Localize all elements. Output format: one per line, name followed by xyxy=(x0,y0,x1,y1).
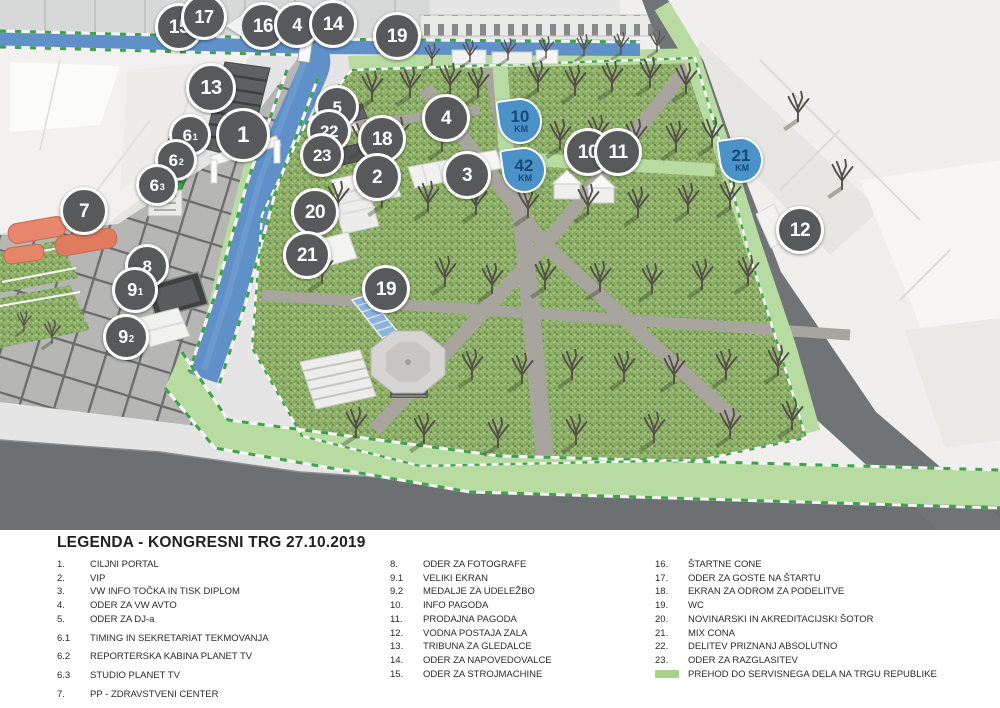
legend-item-label: ODER ZA VW AVTO xyxy=(90,599,177,613)
legend-item: 14.ODER ZA NAPOVEDOVALCE xyxy=(390,654,552,668)
legend-item: 20.NOVINARSKI IN AKREDITACIJSKI ŠOTOR xyxy=(655,613,937,627)
legend-item: 4.ODER ZA VW AVTO xyxy=(57,599,269,613)
map-marker-12: 12 xyxy=(776,206,824,254)
legend-item: 5.ODER ZA DJ-a xyxy=(57,613,269,627)
map-marker-9-2: 92 xyxy=(103,314,149,360)
legend-item-label: VELIKI EKRAN xyxy=(423,572,488,586)
marker-number: 9 xyxy=(118,328,128,346)
map-marker-3: 3 xyxy=(443,151,491,199)
legend-item: 21.MIX CONA xyxy=(655,627,937,641)
legend-item-label: DELITEV PRIZNANJ ABSOLUTNO xyxy=(688,640,837,654)
legend-item: 2.VIP xyxy=(57,572,269,586)
legend-item-number: 11. xyxy=(390,613,423,627)
marker-number: 4 xyxy=(292,16,302,34)
legend-item-label: STUDIO PLANET TV xyxy=(90,669,180,683)
marker-number: 4 xyxy=(441,109,451,128)
legend-item-label: NOVINARSKI IN AKREDITACIJSKI ŠOTOR xyxy=(688,613,873,627)
legend-item-number: 6.1 xyxy=(57,632,90,646)
marker-number: 12 xyxy=(790,221,810,240)
km-value: 42 xyxy=(514,158,533,174)
legend-item-label: ODER ZA DJ-a xyxy=(90,613,154,627)
km-value: 21 xyxy=(731,148,750,164)
legend-item-label: ODER ZA RAZGLASITEV xyxy=(688,654,798,668)
legend-item-label: WC xyxy=(688,599,704,613)
legend-item-number: 6.3 xyxy=(57,669,90,683)
km-value: 10 xyxy=(510,109,529,125)
legend-item: 12.VODNA POSTAJA ZALA xyxy=(390,627,552,641)
legend-item-label: ODER ZA NAPOVEDOVALCE xyxy=(423,654,552,668)
marker-number: 7 xyxy=(79,202,89,221)
map-marker-1: 1 xyxy=(216,108,270,162)
legend-item-number: 1. xyxy=(57,558,90,572)
legend-item-number: 8. xyxy=(390,558,423,572)
legend-item-label: VW INFO TOČKA IN TISK DIPLOM xyxy=(90,585,240,599)
legend-item: 15.ODER ZA STROJMACHINE xyxy=(390,668,552,682)
legend-title: LEGENDA - KONGRESNI TRG 27.10.2019 xyxy=(57,534,366,552)
legend-column-1: 1.CILJNI PORTAL2.VIP3.VW INFO TOČKA IN T… xyxy=(57,558,269,701)
legend-item-label: TRIBUNA ZA GLEDALCE xyxy=(423,640,532,654)
legend-item: 6.3STUDIO PLANET TV xyxy=(57,669,269,683)
map-marker-19a: 19 xyxy=(373,12,421,60)
legend-item-label: TIMING IN SEKRETARIAT TEKMOVANJA xyxy=(90,632,269,646)
map-marker-13: 13 xyxy=(186,63,236,113)
legend-item-number: 19. xyxy=(655,599,688,613)
legend-item-number: 16. xyxy=(655,558,688,572)
legend-item: 19.WC xyxy=(655,599,937,613)
legend-item-label: MEDALJE ZA UDELEŽBO xyxy=(423,585,535,599)
legend-item-number: 14. xyxy=(390,654,423,668)
marker-number: 3 xyxy=(462,166,472,185)
marker-number: 6 xyxy=(150,177,159,194)
legend-item: 18.EKRAN ZA ODROM ZA PODELITVE xyxy=(655,585,937,599)
legend-item-label: ODER ZA STROJMACHINE xyxy=(423,668,542,682)
legend-item: 16.ŠTARTNE CONE xyxy=(655,558,937,572)
legend-item-label: VIP xyxy=(90,572,105,586)
legend-item-number: 9.1 xyxy=(390,572,423,586)
legend-item-label: PREHOD DO SERVISNEGA DELA NA TRGU REPUBL… xyxy=(688,668,937,682)
legend-item-label: ŠTARTNE CONE xyxy=(688,558,762,572)
legend-item-label: REPORTERSKA KABINA PLANET TV xyxy=(90,650,252,664)
km-badge-10km: 10KM xyxy=(495,95,545,147)
legend-item-label: EKRAN ZA ODROM ZA PODELITVE xyxy=(688,585,844,599)
marker-number: 13 xyxy=(200,78,221,98)
map-overlay: 1517164141913161626352223182431011127202… xyxy=(0,0,1000,530)
legend-item-number: 7. xyxy=(57,688,90,702)
legend-item-label: MIX CONA xyxy=(688,627,735,641)
marker-number: 23 xyxy=(313,147,331,164)
marker-number: 18 xyxy=(372,130,392,149)
legend-item-label: INFO PAGODA xyxy=(423,599,488,613)
legend-item-label: PRODAJNA PAGODA xyxy=(423,613,517,627)
legend-item-number: 12. xyxy=(390,627,423,641)
legend-item-label: ODER ZA GOSTE NA ŠTARTU xyxy=(688,572,821,586)
map-marker-21: 21 xyxy=(283,231,331,279)
legend-item: 10.INFO PAGODA xyxy=(390,599,552,613)
legend-column-2: 8.ODER ZA FOTOGRAFE9.1VELIKI EKRAN9.2MED… xyxy=(390,558,552,681)
km-unit: KM xyxy=(518,173,532,182)
legend-item: 11.PRODAJNA PAGODA xyxy=(390,613,552,627)
marker-subnumber: 2 xyxy=(129,335,134,345)
legend-item-number: 17. xyxy=(655,572,688,586)
legend-column-3: 16.ŠTARTNE CONE17.ODER ZA GOSTE NA ŠTART… xyxy=(655,558,937,681)
marker-number: 14 xyxy=(323,15,343,34)
map-marker-6-3: 63 xyxy=(136,164,178,206)
legend-item-label: PP - ZDRAVSTVENI CENTER xyxy=(90,688,218,702)
map-marker-11: 11 xyxy=(594,128,642,176)
legend-item-number: 6.2 xyxy=(57,650,90,664)
legend-item: 13.TRIBUNA ZA GLEDALCE xyxy=(390,640,552,654)
map-marker-20: 20 xyxy=(291,188,339,236)
legend-swatch xyxy=(655,670,679,678)
legend-item: 9.2MEDALJE ZA UDELEŽBO xyxy=(390,585,552,599)
legend-item-label: VODNA POSTAJA ZALA xyxy=(423,627,527,641)
map-marker-23: 23 xyxy=(300,133,344,177)
legend-item: 6.1TIMING IN SEKRETARIAT TEKMOVANJA xyxy=(57,632,269,646)
legend-item-number: 22. xyxy=(655,640,688,654)
legend-item: 1.CILJNI PORTAL xyxy=(57,558,269,572)
legend-item: 22.DELITEV PRIZNANJ ABSOLUTNO xyxy=(655,640,937,654)
legend-item-number: 3. xyxy=(57,585,90,599)
legend: LEGENDA - KONGRESNI TRG 27.10.2019 1.CIL… xyxy=(0,530,1000,708)
map-marker-9-1: 91 xyxy=(112,267,158,313)
legend-item-number: 10. xyxy=(390,599,423,613)
legend-item-number: 20. xyxy=(655,613,688,627)
marker-number: 2 xyxy=(372,168,382,187)
legend-item: 9.1VELIKI EKRAN xyxy=(390,572,552,586)
map-marker-14: 14 xyxy=(309,0,357,48)
km-badge-42km: 42KM xyxy=(499,144,549,196)
marker-number: 9 xyxy=(127,281,137,299)
legend-item-number: 23. xyxy=(655,654,688,668)
km-unit: KM xyxy=(735,163,749,172)
legend-item-label: ODER ZA FOTOGRAFE xyxy=(423,558,526,572)
venue-map: 1517164141913161626352223182431011127202… xyxy=(0,0,1000,530)
legend-item: 3.VW INFO TOČKA IN TISK DIPLOM xyxy=(57,585,269,599)
legend-item-number: 18. xyxy=(655,585,688,599)
legend-item: 6.2REPORTERSKA KABINA PLANET TV xyxy=(57,650,269,664)
legend-item-number: 4. xyxy=(57,599,90,613)
marker-subnumber: 1 xyxy=(193,133,198,142)
map-marker-7: 7 xyxy=(60,187,108,235)
map-marker-19b: 19 xyxy=(362,265,410,313)
marker-number: 6 xyxy=(169,152,178,169)
marker-number: 16 xyxy=(253,17,273,36)
venue-map-page: 1517164141913161626352223182431011127202… xyxy=(0,0,1000,708)
legend-item-number: 9.2 xyxy=(390,585,423,599)
legend-item-number: 13. xyxy=(390,640,423,654)
legend-item: 17.ODER ZA GOSTE NA ŠTARTU xyxy=(655,572,937,586)
map-marker-2: 2 xyxy=(353,153,401,201)
marker-number: 20 xyxy=(305,203,325,222)
map-marker-4b: 4 xyxy=(422,94,470,142)
marker-number: 17 xyxy=(194,8,213,26)
legend-item-label: CILJNI PORTAL xyxy=(90,558,159,572)
legend-item: PREHOD DO SERVISNEGA DELA NA TRGU REPUBL… xyxy=(655,668,937,682)
legend-item: 23.ODER ZA RAZGLASITEV xyxy=(655,654,937,668)
legend-item-number: 21. xyxy=(655,627,688,641)
marker-number: 21 xyxy=(297,246,317,265)
marker-subnumber: 1 xyxy=(138,288,143,298)
legend-item-number: 5. xyxy=(57,613,90,627)
marker-number: 19 xyxy=(376,280,396,299)
marker-number: 1 xyxy=(237,124,249,146)
legend-item-number: 2. xyxy=(57,572,90,586)
marker-number: 19 xyxy=(387,27,407,46)
km-badge-21km: 21KM xyxy=(716,134,766,186)
marker-number: 11 xyxy=(608,143,627,162)
marker-subnumber: 2 xyxy=(179,158,184,167)
legend-item: 8.ODER ZA FOTOGRAFE xyxy=(390,558,552,572)
legend-item-number: 15. xyxy=(390,668,423,682)
km-unit: KM xyxy=(514,124,528,133)
legend-item: 7.PP - ZDRAVSTVENI CENTER xyxy=(57,688,269,702)
marker-subnumber: 3 xyxy=(160,183,165,192)
